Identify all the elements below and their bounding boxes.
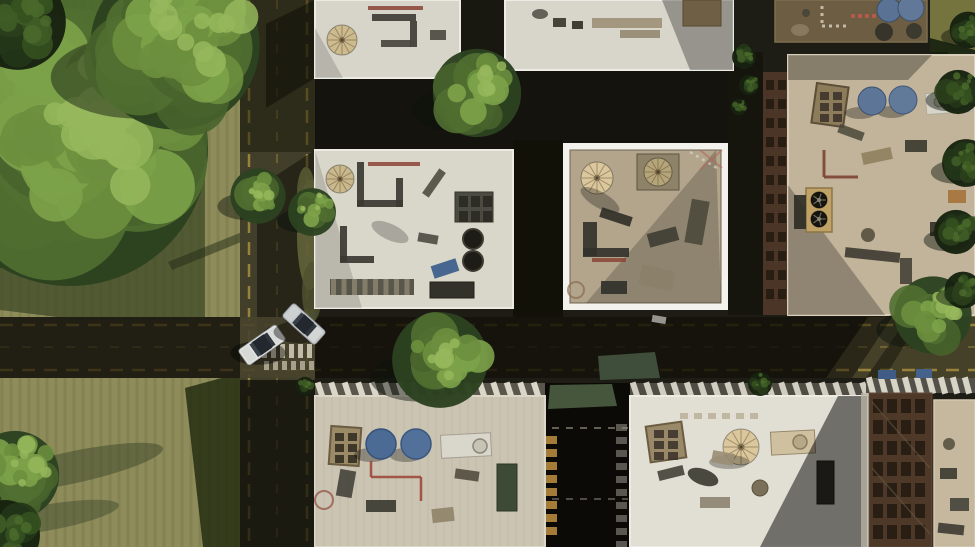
roof-unit [950, 498, 969, 511]
red-pipe [368, 6, 423, 10]
roof-pipe [340, 256, 374, 263]
water-tank-sphere [898, 0, 924, 21]
aerial-city-viewport[interactable] [0, 0, 975, 547]
unit-port [793, 435, 807, 449]
roof-unit [794, 195, 806, 229]
roof-crates [620, 30, 660, 38]
roof-unit [430, 282, 474, 298]
skylight [811, 83, 848, 127]
bush [748, 372, 772, 396]
green-unit [497, 464, 517, 511]
water-tank-round [644, 158, 672, 186]
roof-vent [532, 9, 548, 19]
water-tank-sphere [877, 0, 901, 22]
facade-edge-lit [861, 393, 869, 547]
exhaust-fan-large [463, 251, 483, 271]
roof-vent [861, 228, 875, 242]
alley-center [513, 140, 563, 317]
exhaust-fan [811, 192, 827, 208]
roof-crate [700, 497, 730, 508]
water-dome-blue [401, 429, 431, 459]
green-tarp [598, 352, 660, 380]
roof-crate [431, 507, 454, 523]
road-shadow-west [0, 317, 240, 378]
roof-vent [802, 9, 810, 17]
roof-unit [940, 468, 957, 479]
roof-pipe [583, 248, 629, 257]
road-shadow-south [240, 380, 315, 547]
bush [731, 99, 748, 116]
roof-vent [943, 438, 955, 450]
water-tank-sphere [858, 87, 886, 115]
roof-dome-vent [326, 165, 354, 193]
green-awning [548, 384, 617, 409]
tank-sphere-shaded [906, 23, 922, 39]
roof-vent [791, 24, 809, 36]
red-pipe [592, 258, 626, 262]
alley-north [315, 70, 763, 152]
tank-sphere-shaded [875, 23, 893, 41]
roof-unit [601, 281, 627, 294]
roof-unit [900, 258, 912, 284]
roof-vent [752, 480, 768, 496]
skylight [646, 422, 687, 463]
roof-unit [553, 18, 566, 27]
roof-shade [788, 55, 932, 80]
roof-unit [905, 140, 927, 152]
roof-beams [866, 377, 972, 395]
roof-blue-panel [878, 370, 896, 379]
roof-unit [366, 500, 396, 512]
container-port [473, 439, 487, 453]
roof-blue-panel [916, 369, 932, 378]
water-tank-sphere [889, 86, 917, 114]
bush [739, 75, 759, 95]
exhaust-fan [811, 211, 827, 227]
scene-canvas [0, 0, 975, 547]
red-pipe [368, 162, 420, 166]
roof-unit [430, 30, 446, 40]
roof-shed [683, 0, 721, 26]
roof-pipe [410, 21, 417, 47]
roof-pipe [357, 162, 364, 206]
roof-crates [592, 18, 662, 28]
roof-unit [381, 40, 411, 47]
roof-pipe [396, 178, 403, 207]
roof-unit-orange [948, 190, 966, 203]
exhaust-fan-large [463, 229, 483, 249]
water-dome-blue [366, 429, 396, 459]
roof-unit [572, 21, 583, 29]
roof-dome-vent [327, 25, 357, 55]
roof-pipe [372, 14, 416, 21]
